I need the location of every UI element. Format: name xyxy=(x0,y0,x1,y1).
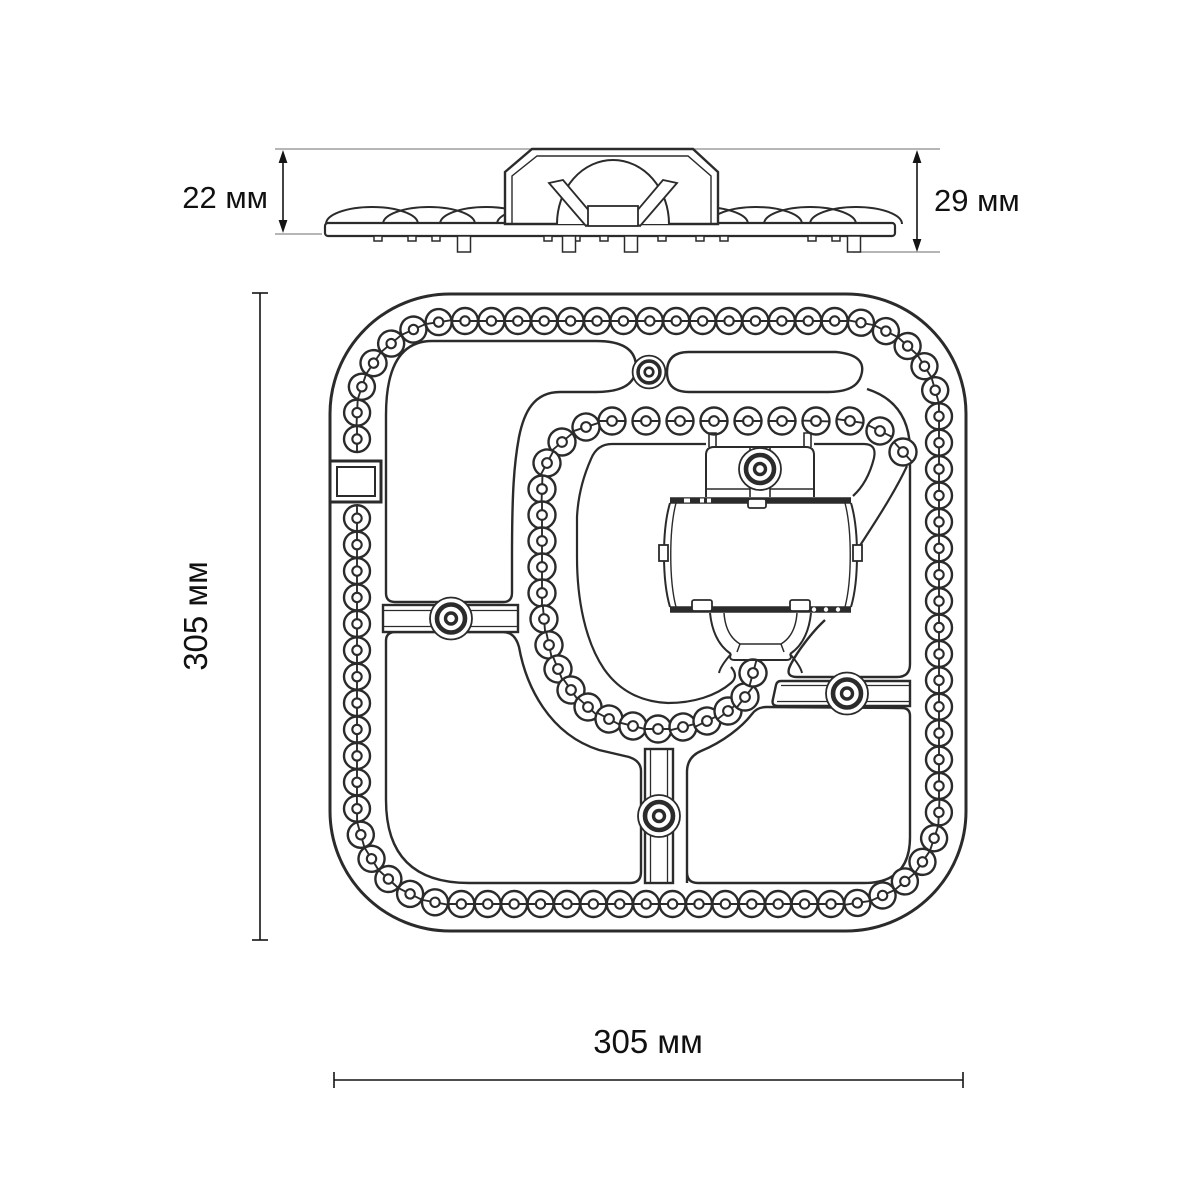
led-lens xyxy=(846,307,876,337)
led-lens xyxy=(344,399,371,426)
top-slot xyxy=(667,352,862,392)
led-lens xyxy=(690,308,716,334)
solder-pin xyxy=(696,236,704,241)
led-lens xyxy=(344,716,370,742)
led-lens xyxy=(344,769,370,795)
led-lens xyxy=(926,535,952,561)
support-ribs xyxy=(383,605,910,883)
led-lens xyxy=(795,308,821,334)
led-lens xyxy=(926,509,952,535)
solder-pin xyxy=(600,236,608,241)
led-lens xyxy=(742,308,768,334)
edge-connector xyxy=(330,461,381,502)
led-lens xyxy=(344,611,370,637)
mounting-leg xyxy=(563,236,576,252)
led-lens xyxy=(926,430,952,456)
screw-boss xyxy=(739,448,781,490)
solder-pin xyxy=(720,236,728,241)
led-lens xyxy=(529,554,556,581)
mounting-leg xyxy=(848,236,861,252)
led-lens xyxy=(926,403,952,429)
solder-pin xyxy=(408,236,416,241)
solder-pin xyxy=(432,236,440,241)
led-lens xyxy=(926,747,952,773)
led-lens xyxy=(843,888,873,918)
led-lens xyxy=(528,475,556,503)
led-lens xyxy=(818,891,844,917)
top-view xyxy=(330,294,966,931)
led-lens xyxy=(610,308,636,334)
dimension-label-module-height: 305 мм xyxy=(177,561,214,671)
bottom-clip-right xyxy=(790,600,810,611)
led-lens xyxy=(344,584,370,610)
led-lens xyxy=(735,408,762,435)
arrow-down-icon xyxy=(279,220,288,233)
technical-drawing-page: 22 мм 29 мм 305 мм 305 мм xyxy=(0,0,1200,1200)
dimension-annotations: 22 мм 29 мм 305 мм 305 мм xyxy=(177,149,1020,1088)
arrow-up-icon xyxy=(913,150,922,163)
led-lens xyxy=(739,891,765,917)
led-lens xyxy=(607,891,633,917)
led-lens xyxy=(633,891,659,917)
led-lens xyxy=(554,891,580,917)
dimension-label-side-total-height: 29 мм xyxy=(934,183,1020,218)
screw-boss xyxy=(430,598,472,640)
dim-line-305mm-left xyxy=(252,293,268,940)
led-module-drawing: 22 мм 29 мм 305 мм 305 мм xyxy=(0,0,1200,1200)
led-lens xyxy=(701,408,728,435)
led-lens xyxy=(501,891,527,917)
mounting-leg xyxy=(458,236,471,252)
led-lens xyxy=(660,891,686,917)
solder-pin xyxy=(658,236,666,241)
solder-pin xyxy=(544,236,552,241)
side-view xyxy=(325,149,902,252)
dimension-label-side-height: 22 мм xyxy=(182,180,268,215)
led-lens xyxy=(835,406,865,436)
island-top-right-edge xyxy=(814,444,875,496)
screw-boss xyxy=(826,673,868,715)
led-lens xyxy=(505,308,531,334)
led-lens xyxy=(424,307,454,337)
led-lens xyxy=(420,887,450,917)
screw-boss xyxy=(633,356,666,389)
led-lens xyxy=(599,408,626,435)
mounting-leg xyxy=(625,236,638,252)
terminal-block-profile xyxy=(588,206,638,226)
led-lens xyxy=(926,641,952,667)
led-lens xyxy=(769,308,795,334)
led-lens xyxy=(663,308,689,334)
side-tab-right xyxy=(853,545,862,561)
led-lens xyxy=(769,408,796,435)
led-lens xyxy=(528,891,554,917)
led-lens xyxy=(792,891,818,917)
led-lens xyxy=(344,558,370,584)
region-upper-left xyxy=(386,341,636,602)
led-lens xyxy=(478,308,504,334)
led-lens xyxy=(584,308,610,334)
led-lens xyxy=(448,891,474,917)
led-lens xyxy=(529,604,558,633)
led-lens xyxy=(926,773,952,799)
led-lens xyxy=(926,562,952,588)
led-lens xyxy=(802,407,830,435)
dimension-label-module-width: 305 мм xyxy=(593,1023,703,1060)
led-lens xyxy=(926,615,952,641)
side-tab-left xyxy=(659,545,668,561)
dim-line-305mm-bottom xyxy=(334,1072,963,1088)
screw-boss xyxy=(638,795,680,837)
led-lens xyxy=(633,408,660,435)
bottom-clip-left xyxy=(692,600,712,611)
led-lens xyxy=(344,690,370,716)
led-lens xyxy=(926,694,952,720)
led-lens xyxy=(712,891,738,917)
mounting-pins xyxy=(374,236,861,252)
led-lens xyxy=(344,505,370,531)
led-lens xyxy=(344,664,370,690)
led-lens xyxy=(452,308,478,334)
led-lens xyxy=(926,483,952,509)
led-lens xyxy=(529,502,556,529)
region-lower-right xyxy=(687,707,910,883)
led-lens xyxy=(344,743,370,769)
led-lens xyxy=(926,720,952,746)
led-lens xyxy=(716,308,742,334)
driver-box xyxy=(659,497,862,613)
led-lens xyxy=(926,588,952,614)
led-lens xyxy=(637,308,663,334)
led-lens xyxy=(580,891,606,917)
led-lens xyxy=(529,528,556,555)
led-lens xyxy=(667,408,694,435)
solder-pin xyxy=(832,236,840,241)
led-lens xyxy=(686,891,712,917)
led-lens xyxy=(529,580,556,607)
led-lens xyxy=(558,308,584,334)
led-lens xyxy=(765,891,791,917)
solder-pin xyxy=(374,236,382,241)
led-lens xyxy=(344,426,370,452)
led-lens xyxy=(344,637,370,663)
led-lens xyxy=(926,667,952,693)
led-lens xyxy=(822,308,848,334)
top-clip xyxy=(748,499,766,508)
arrow-down-icon xyxy=(913,239,922,252)
led-lens xyxy=(531,308,557,334)
led-lens xyxy=(344,796,370,822)
led-lens xyxy=(645,716,672,743)
led-lens xyxy=(925,799,952,826)
region-lower-left xyxy=(386,632,641,883)
led-lens xyxy=(344,532,370,558)
led-lens xyxy=(926,456,952,482)
arrow-up-icon xyxy=(279,150,288,163)
solder-pin xyxy=(808,236,816,241)
led-lens xyxy=(475,891,501,917)
